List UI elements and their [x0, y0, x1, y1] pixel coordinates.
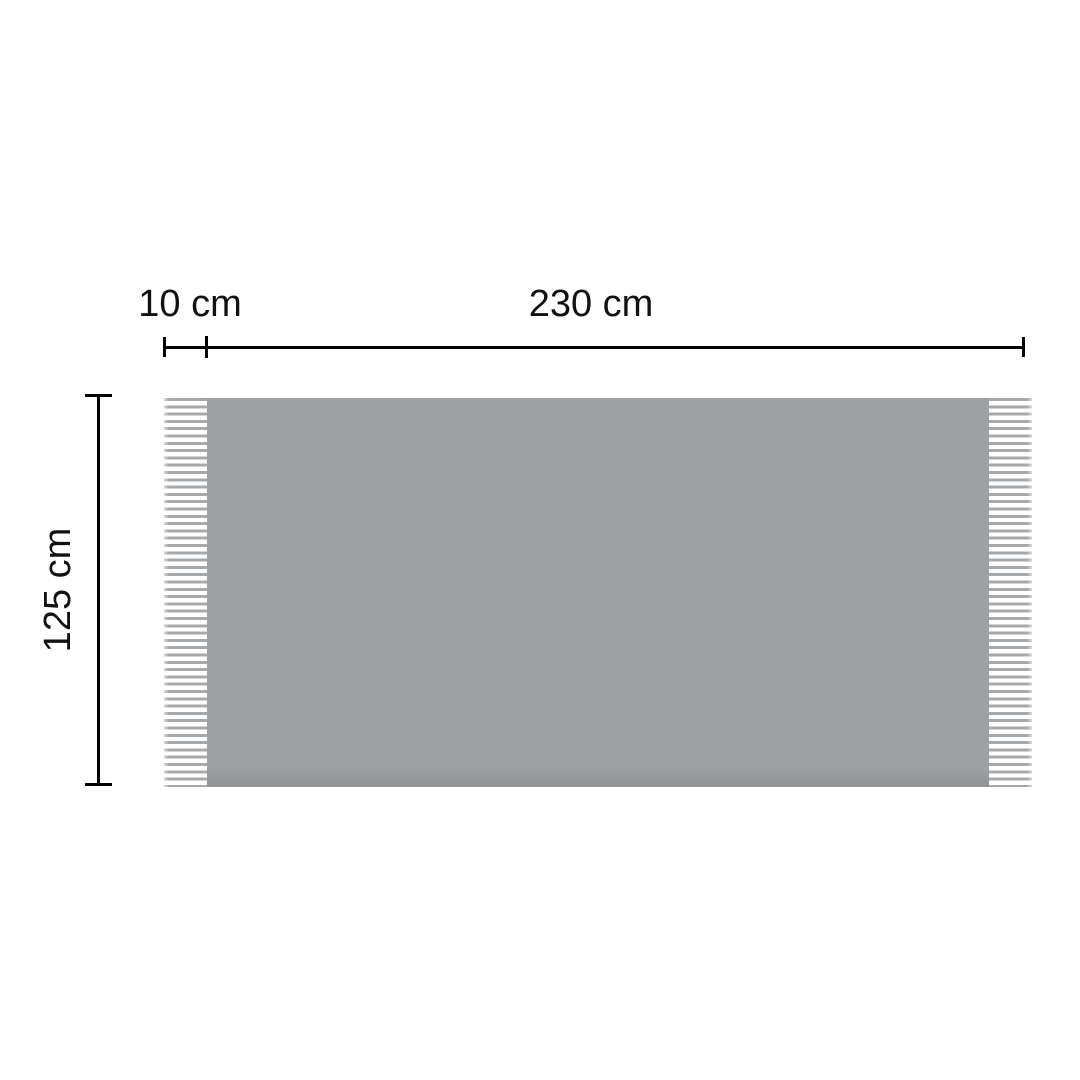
height-label: 125 cm	[39, 528, 77, 653]
height-dimension-cap-top	[85, 394, 112, 397]
fringe-width-label: 10 cm	[138, 285, 241, 323]
width-dimension-tick-left	[163, 337, 166, 357]
product-dimension-diagram: 10 cm 230 cm 125 cm	[0, 0, 1080, 1080]
blanket-fringe-left	[164, 398, 207, 787]
height-dimension-line	[97, 395, 100, 785]
width-dimension-tick-middle	[205, 336, 208, 358]
width-dimension-tick-right	[1022, 337, 1025, 357]
height-dimension-cap-bottom	[85, 783, 112, 786]
body-width-label: 230 cm	[529, 285, 654, 323]
blanket-fringe-right	[989, 398, 1032, 787]
width-dimension-line	[163, 346, 1025, 349]
blanket-body	[207, 398, 989, 787]
